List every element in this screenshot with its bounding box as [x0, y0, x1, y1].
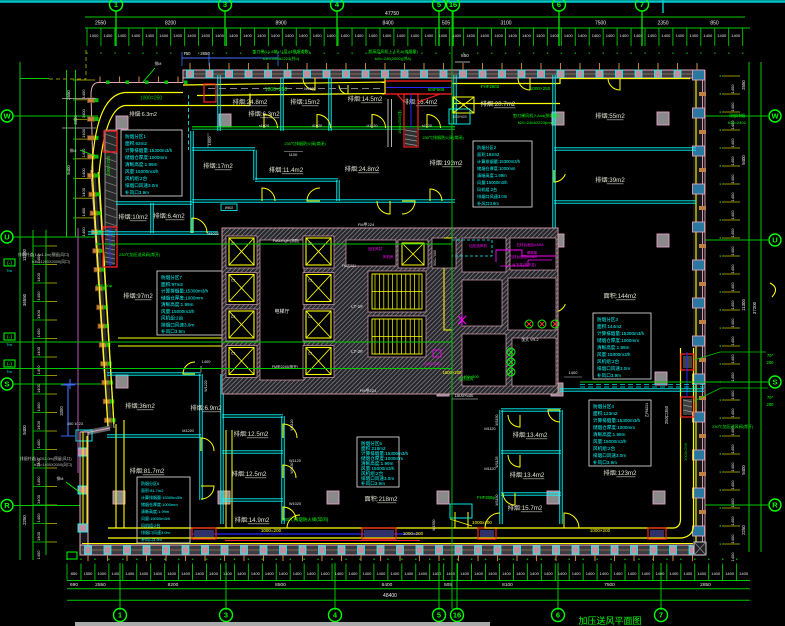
svg-text:1400: 1400	[731, 33, 741, 38]
svg-text:1400: 1400	[36, 494, 41, 504]
svg-text:1400: 1400	[396, 33, 406, 38]
svg-text:FM乙221: FM乙221	[342, 263, 356, 268]
svg-text:电梯厅: 电梯厅	[274, 308, 289, 315]
svg-text:1400: 1400	[209, 571, 219, 576]
svg-text:补风口3.9m: 补风口3.9m	[125, 189, 149, 196]
svg-text:1400: 1400	[730, 282, 735, 292]
svg-text:7500: 7500	[604, 582, 615, 588]
svg-text:排烟:12.5m2: 排烟:12.5m2	[234, 430, 269, 438]
svg-text:1400: 1400	[730, 372, 735, 382]
svg-text:1400: 1400	[36, 550, 41, 560]
svg-text:47750: 47750	[385, 11, 399, 17]
svg-text:1400: 1400	[223, 571, 233, 576]
svg-text:b3h=1400X2000(风口): b3h=1400X2000(风口)	[34, 463, 73, 467]
svg-text:6: 6	[556, 611, 560, 620]
svg-text:防烟分区4: 防烟分区4	[593, 403, 614, 410]
svg-text:FM甲224: FM甲224	[358, 222, 375, 227]
svg-text:补风口3.9m: 补风口3.9m	[161, 328, 185, 335]
svg-text:1550: 1550	[83, 571, 93, 576]
svg-text:排烟口风速3.0m: 排烟口风速3.0m	[477, 193, 508, 200]
svg-text:1400: 1400	[36, 439, 41, 449]
svg-text:1400: 1400	[586, 571, 596, 576]
svg-text:1400: 1400	[307, 571, 317, 576]
svg-text:1400: 1400	[739, 571, 749, 576]
svg-text:1400: 1400	[730, 498, 735, 508]
svg-text:1400: 1400	[730, 138, 735, 148]
svg-text:1400: 1400	[167, 571, 177, 576]
svg-text:1400: 1400	[285, 33, 295, 38]
svg-text:1400: 1400	[125, 571, 135, 576]
svg-text:S: S	[772, 378, 777, 387]
svg-text:1400: 1400	[675, 33, 685, 38]
svg-text:排烟:36m2: 排烟:36m2	[125, 402, 155, 410]
svg-text:排烟:12.5m2: 排烟:12.5m2	[232, 470, 267, 478]
svg-text:补风口3.9m: 补风口3.9m	[361, 480, 385, 487]
svg-text:面积:81.7m2: 面积:81.7m2	[141, 487, 164, 493]
svg-text:W1020: W1020	[289, 502, 301, 506]
svg-text:3: 3	[224, 611, 228, 620]
svg-text:9400: 9400	[741, 465, 746, 475]
svg-text:7m: 7m	[6, 369, 12, 374]
svg-text:博物架: 博物架	[527, 250, 538, 255]
svg-text:风量:15000m3/h: 风量:15000m3/h	[125, 168, 159, 175]
svg-text:b2h=2402: b2h=2402	[728, 120, 747, 125]
svg-text:排烟口风速3.0m: 排烟口风速3.0m	[125, 182, 158, 189]
svg-text:剪刀梯风机入And(排烟量): 剪刀梯风机入And(排烟量)	[513, 112, 559, 118]
svg-text:排烟:10m2: 排烟:10m2	[118, 213, 148, 221]
svg-text:风机组:2台: 风机组:2台	[597, 358, 620, 365]
svg-text:M1520: M1520	[304, 87, 316, 91]
svg-text:储烟仓厚度:1000mm: 储烟仓厚度:1000mm	[593, 424, 635, 431]
svg-text:1400: 1400	[36, 420, 41, 430]
svg-text:风量:15000m3/h: 风量:15000m3/h	[597, 351, 631, 358]
svg-text:排烟:14.5m2: 排烟:14.5m2	[348, 95, 383, 103]
svg-text:1400: 1400	[683, 571, 693, 576]
svg-text:面积:144m2: 面积:144m2	[603, 292, 637, 300]
svg-text:1000x2500(排): 1000x2500(排)	[397, 110, 402, 134]
svg-text:面积:192m2: 面积:192m2	[477, 151, 500, 158]
svg-text:补风口3.9m: 补风口3.9m	[593, 459, 617, 466]
svg-text:排烟:24.8m2: 排烟:24.8m2	[345, 165, 380, 173]
svg-text:1400: 1400	[466, 33, 476, 38]
svg-text:1400: 1400	[558, 571, 568, 576]
svg-text:W: W	[771, 112, 779, 121]
svg-text:1400: 1400	[730, 192, 735, 202]
svg-text:加压送风: 加压送风	[458, 376, 473, 381]
svg-text:W1125: W1125	[495, 456, 499, 467]
svg-text:W1150: W1150	[495, 414, 499, 425]
svg-text:排烟:24.8m2: 排烟:24.8m2	[233, 98, 268, 106]
svg-text:1400: 1400	[321, 571, 331, 576]
svg-text:清晰高度:1.99m: 清晰高度:1.99m	[597, 344, 630, 351]
svg-text:7500: 7500	[595, 21, 606, 27]
svg-text:850: 850	[710, 21, 719, 27]
svg-text:1400: 1400	[36, 402, 41, 412]
svg-text:50017000: 50017000	[433, 250, 437, 266]
svg-text:面积:218m2: 面积:218m2	[364, 495, 398, 503]
svg-text:1400: 1400	[251, 571, 261, 576]
svg-text:2650: 2650	[200, 51, 210, 56]
svg-text:1400: 1400	[81, 128, 86, 138]
svg-text:11300: 11300	[741, 299, 746, 311]
svg-text:1400: 1400	[145, 33, 155, 38]
svg-text:850 1023: 850 1023	[67, 422, 83, 426]
svg-text:R: R	[772, 501, 778, 510]
svg-text:1400: 1400	[460, 571, 470, 576]
svg-text:M1120: M1120	[484, 427, 495, 431]
svg-text:1400: 1400	[81, 89, 86, 99]
svg-text:3: 3	[223, 0, 227, 9]
svg-text:1400: 1400	[139, 571, 149, 576]
svg-text:1400: 1400	[730, 156, 735, 166]
svg-text:W1150: W1150	[495, 494, 499, 505]
svg-text:面积:63m2: 面积:63m2	[125, 140, 147, 147]
svg-text:1400: 1400	[730, 354, 735, 364]
svg-text:清晰高度:1.99m: 清晰高度:1.99m	[125, 161, 158, 168]
svg-text:1400: 1400	[578, 33, 588, 38]
svg-text:1400: 1400	[201, 33, 211, 38]
svg-text:8200: 8200	[165, 21, 176, 27]
svg-text:加压风井: 加压风井	[368, 246, 383, 251]
svg-text:230℃加压送风阀(常开): 230℃加压送风阀(常开)	[119, 251, 161, 257]
svg-text:(-): (-)	[7, 362, 12, 368]
svg-text:U: U	[772, 236, 777, 245]
svg-text:排烟:17m2: 排烟:17m2	[203, 162, 233, 170]
svg-text:面积:123m2: 面积:123m2	[593, 410, 618, 417]
svg-text:排烟:97m2: 排烟:97m2	[123, 292, 153, 300]
svg-text:W1150: W1150	[290, 462, 294, 473]
svg-text:1400: 1400	[81, 187, 86, 197]
svg-text:1400: 1400	[592, 33, 602, 38]
svg-text:16: 16	[449, 0, 457, 9]
svg-text:2250: 2250	[22, 515, 27, 525]
svg-text:1400: 1400	[36, 346, 41, 356]
svg-text:1400: 1400	[730, 228, 735, 238]
svg-text:1400: 1400	[634, 33, 644, 38]
svg-text:防烟分区3: 防烟分区3	[597, 316, 618, 323]
svg-text:1400: 1400	[195, 571, 205, 576]
svg-text:1400: 1400	[730, 84, 735, 94]
svg-text:1400: 1400	[438, 33, 448, 38]
svg-text:W602: W602	[225, 206, 234, 210]
svg-text:1400: 1400	[341, 33, 351, 38]
svg-text:1400: 1400	[173, 33, 183, 38]
svg-text:2250: 2250	[741, 525, 746, 535]
svg-text:1400: 1400	[600, 571, 610, 576]
svg-text:1400: 1400	[36, 309, 41, 319]
svg-text:1400: 1400	[117, 33, 127, 38]
svg-text:M1550: M1550	[432, 520, 436, 531]
svg-text:9400: 9400	[22, 425, 27, 435]
svg-text:1400: 1400	[669, 571, 679, 576]
svg-text:2550: 2550	[95, 582, 106, 588]
svg-text:1400: 1400	[536, 33, 546, 38]
svg-text:1400: 1400	[355, 33, 365, 38]
svg-text:8500: 8500	[275, 582, 286, 588]
svg-text:1400: 1400	[418, 571, 428, 576]
svg-text:1400: 1400	[550, 33, 560, 38]
svg-text:1400: 1400	[648, 33, 658, 38]
svg-text:1000×200: 1000×200	[590, 528, 611, 533]
svg-text:1400: 1400	[488, 571, 498, 576]
svg-text:2550: 2550	[95, 21, 106, 27]
svg-text:1400: 1400	[502, 571, 512, 576]
svg-text:1400: 1400	[446, 571, 456, 576]
svg-text:1400: 1400	[655, 571, 665, 576]
svg-text:1400: 1400	[424, 33, 434, 38]
svg-text:1400: 1400	[293, 571, 303, 576]
svg-text:1400: 1400	[641, 571, 651, 576]
svg-text:计算排烟量:15300m3/h: 计算排烟量:15300m3/h	[477, 158, 521, 165]
svg-text:(-): (-)	[7, 261, 12, 267]
svg-text:防烟分区7: 防烟分区7	[161, 274, 182, 281]
svg-text:1400: 1400	[530, 571, 540, 576]
svg-text:7: 7	[640, 0, 644, 9]
svg-text:1400: 1400	[36, 513, 41, 523]
svg-text:1400: 1400	[730, 516, 735, 526]
svg-text:1400: 1400	[349, 571, 359, 576]
svg-text:补风口3.9m: 补风口3.9m	[597, 372, 621, 379]
svg-text:M1220: M1220	[182, 429, 194, 433]
svg-text:1000: 1000	[97, 571, 107, 576]
svg-text:250口350: 250口350	[664, 405, 669, 424]
svg-text:U: U	[4, 233, 9, 242]
svg-text:Passenger(消防): Passenger(消防)	[273, 238, 300, 243]
svg-text:280: 280	[767, 360, 775, 365]
svg-text:1400: 1400	[480, 33, 490, 38]
svg-text:风机组:2台: 风机组:2台	[593, 445, 616, 452]
svg-text:C3: C3	[308, 315, 312, 319]
svg-text:1400: 1400	[730, 480, 735, 490]
svg-text:1400: 1400	[452, 33, 462, 38]
svg-text:5: 5	[437, 611, 441, 620]
svg-text:排烟口风速3.0m: 排烟口风速3.0m	[593, 452, 626, 459]
svg-text:1400: 1400	[730, 462, 735, 472]
svg-text:1400: 1400	[215, 33, 225, 38]
svg-text:排烟:20.7m2: 排烟:20.7m2	[481, 100, 516, 108]
svg-text:C3: C3	[231, 279, 235, 283]
svg-text:储烟仓厚度:1000mm: 储烟仓厚度:1000mm	[597, 337, 639, 344]
svg-text:计算排烟量:15300m3/h: 计算排烟量:15300m3/h	[161, 288, 209, 295]
svg-text:1400: 1400	[103, 33, 113, 38]
svg-text:1400: 1400	[390, 571, 400, 576]
svg-text:剪刀梯(L1.8坡x八层)(4根烟道数): 剪刀梯(L1.8坡x八层)(4根烟道数)	[252, 48, 310, 54]
svg-text:1400: 1400	[703, 33, 713, 38]
svg-text:1400: 1400	[181, 571, 191, 576]
svg-text:1400: 1400	[522, 33, 532, 38]
svg-text:LT-2#: LT-2#	[351, 349, 363, 354]
svg-text:排烟:16.4m2: 排烟:16.4m2	[403, 98, 438, 106]
svg-text:排烟:15m2: 排烟:15m2	[290, 98, 320, 106]
svg-text:排烟:192m2: 排烟:192m2	[429, 159, 463, 167]
svg-text:1400: 1400	[569, 370, 579, 375]
svg-text:1400: 1400	[81, 108, 86, 118]
svg-text:9400: 9400	[741, 155, 746, 165]
svg-text:风机组:2台: 风机组:2台	[125, 175, 148, 182]
svg-text:36550: 36550	[22, 293, 27, 306]
svg-text:排烟:6.3m2: 排烟:6.3m2	[129, 110, 157, 118]
svg-text:230℃排烟防火阀(常闭): 230℃排烟防火阀(常闭)	[422, 134, 464, 140]
svg-text:W1220: W1220	[204, 380, 208, 391]
svg-text:坐式 VR-2: 坐式 VR-2	[521, 337, 538, 342]
svg-text:1400: 1400	[159, 33, 169, 38]
svg-text:FHF280φ: FHF280φ	[96, 284, 113, 288]
svg-text:1000=250: 1000=250	[265, 87, 288, 93]
svg-text:1000: 1000	[90, 33, 100, 38]
svg-text:280: 280	[767, 402, 775, 407]
svg-text:乙FM224: 乙FM224	[644, 403, 649, 418]
svg-text:1400: 1400	[81, 168, 86, 178]
svg-text:s1020: s1020	[259, 124, 269, 128]
svg-text:1400: 1400	[81, 148, 86, 158]
svg-text:储烟仓厚度:1000mm: 储烟仓厚度:1000mm	[161, 294, 203, 301]
svg-text:排烟口风速3.0m: 排烟口风速3.0m	[141, 529, 171, 535]
svg-text:1400: 1400	[508, 33, 518, 38]
svg-text:1400: 1400	[730, 264, 735, 274]
svg-text:S: S	[4, 380, 9, 389]
svg-text:70*: 70*	[767, 395, 774, 400]
svg-text:C3: C3	[308, 279, 312, 283]
svg-text:C3: C3	[231, 352, 235, 356]
svg-text:2850: 2850	[700, 582, 711, 588]
svg-text:2300: 2300	[73, 115, 78, 125]
svg-text:排烟:123m2: 排烟:123m2	[603, 469, 637, 477]
svg-text:37200: 37200	[752, 301, 757, 314]
svg-text:LT-1#: LT-1#	[351, 304, 363, 309]
svg-text:储烟仓厚度:1000mm: 储烟仓厚度:1000mm	[477, 165, 516, 172]
svg-text:6400: 6400	[382, 582, 393, 588]
svg-text:1400: 1400	[382, 33, 392, 38]
svg-text:1400: 1400	[730, 408, 735, 418]
svg-text:8900: 8900	[275, 21, 286, 27]
svg-text:9400: 9400	[66, 165, 71, 175]
svg-text:1400: 1400	[36, 365, 41, 375]
svg-text:1400: 1400	[730, 534, 735, 544]
svg-text:排烟井道(1.6x1.2m)预留(风口): 排烟井道(1.6x1.2m)预留(风口)	[18, 252, 70, 257]
svg-text:1400: 1400	[661, 33, 671, 38]
svg-text:1400: 1400	[725, 571, 735, 576]
svg-text:1400: 1400	[243, 33, 253, 38]
svg-text:风机组:2台: 风机组:2台	[161, 315, 184, 322]
svg-text:b2h=240(2000)(供A): b2h=240(2000)(供A)	[375, 55, 412, 61]
svg-text:排M: 排M	[155, 61, 162, 66]
svg-text:加压送风机: 加压送风机	[469, 243, 487, 248]
svg-text:W1120: W1120	[289, 459, 301, 463]
svg-text:7: 7	[659, 611, 663, 620]
svg-text:1400: 1400	[544, 571, 554, 576]
svg-text:7m: 7m	[6, 342, 12, 347]
svg-text:1400: 1400	[432, 571, 442, 576]
svg-text:1000x400: 1000x400	[472, 520, 492, 525]
svg-text:2350: 2350	[657, 21, 668, 27]
svg-text:面积:144m2: 面积:144m2	[597, 323, 622, 330]
svg-text:顶部排烟: 顶部排烟	[729, 112, 745, 118]
svg-text:7m: 7m	[6, 268, 12, 273]
svg-text:1400: 1400	[628, 571, 638, 576]
svg-text:1400: 1400	[81, 207, 86, 217]
svg-text:防烟分区2: 防烟分区2	[477, 144, 497, 151]
svg-text:石材台面及nANA: 石材台面及nANA	[516, 242, 544, 247]
svg-text:U1120: U1120	[367, 124, 378, 128]
svg-text:面积:97m2: 面积:97m2	[161, 281, 183, 288]
svg-text:FHF2802: FHF2802	[481, 84, 500, 89]
svg-text:850: 850	[71, 571, 78, 576]
svg-text:1400: 1400	[36, 328, 41, 338]
svg-text:1400: 1400	[474, 571, 484, 576]
svg-text:1000×250: 1000×250	[424, 362, 441, 366]
svg-text:排烟:6.4m2: 排烟:6.4m2	[153, 212, 185, 220]
svg-text:1000=200: 1000=200	[403, 531, 424, 536]
svg-text:1400: 1400	[730, 318, 735, 328]
svg-text:1400: 1400	[730, 444, 735, 454]
svg-text:计算排烟量:15300m3/h: 计算排烟量:15300m3/h	[125, 147, 173, 154]
svg-text:W: W	[3, 112, 11, 121]
svg-text:W1120: W1120	[290, 419, 294, 430]
svg-text:1400: 1400	[279, 571, 289, 576]
svg-text:1400: 1400	[494, 33, 504, 38]
svg-text:排烟:13.4m2: 排烟:13.4m2	[513, 431, 548, 439]
svg-text:48400: 48400	[383, 593, 397, 599]
svg-text:FM甲224: FM甲224	[360, 388, 377, 393]
svg-text:C3: C3	[308, 352, 312, 356]
svg-text:M1023: M1023	[207, 232, 219, 236]
svg-text:s1120: s1120	[422, 124, 432, 128]
svg-text:1400: 1400	[697, 571, 707, 576]
svg-text:230℃排烟防火阀(常闭): 230℃排烟防火阀(常闭)	[284, 140, 326, 146]
svg-text:清晰高度:1.99m: 清晰高度:1.99m	[161, 301, 194, 308]
svg-text:排烟:11.4m2: 排烟:11.4m2	[269, 166, 304, 174]
svg-text:1100: 1100	[289, 152, 298, 157]
svg-text:排烟口风速3.0m: 排烟口风速3.0m	[597, 365, 630, 372]
svg-text:排烟:81.7m2: 排烟:81.7m2	[130, 467, 165, 475]
svg-text:风机组:2台: 风机组:2台	[141, 522, 160, 528]
svg-text:清晰高度:1.99m: 清晰高度:1.99m	[141, 508, 170, 514]
svg-text:1000=250: 1000=250	[140, 96, 163, 102]
svg-text:8400: 8400	[382, 21, 393, 27]
svg-text:505: 505	[444, 582, 452, 588]
svg-text:750: 750	[184, 51, 192, 56]
svg-text:排烟:55m2: 排烟:55m2	[595, 112, 625, 120]
svg-text:1400: 1400	[36, 383, 41, 393]
svg-text:排烟:6.9m2: 排烟:6.9m2	[190, 404, 222, 412]
svg-text:1400: 1400	[313, 33, 323, 38]
svg-text:1400: 1400	[362, 571, 372, 576]
svg-text:防烟分区6: 防烟分区6	[141, 480, 160, 486]
svg-text:计算排烟量:15300m3/h: 计算排烟量:15300m3/h	[593, 417, 641, 424]
svg-text:850: 850	[461, 53, 469, 58]
svg-text:16: 16	[453, 611, 461, 620]
svg-text:超高层风机上人孔A(排烟量): 超高层风机上人孔A(排烟量)	[368, 48, 418, 54]
svg-text:1000×250: 1000×250	[106, 155, 111, 176]
svg-text:排烟:6.3m2: 排烟:6.3m2	[248, 110, 280, 118]
svg-text:8200: 8200	[168, 582, 179, 588]
svg-text:1400: 1400	[187, 33, 197, 38]
svg-text:505: 505	[442, 21, 451, 27]
svg-text:排烟:14.9m2: 排烟:14.9m2	[235, 516, 270, 524]
svg-text:R: R	[4, 501, 10, 510]
svg-text:1400: 1400	[229, 33, 239, 38]
svg-text:储烟仓厚度:1000mm: 储烟仓厚度:1000mm	[141, 501, 178, 507]
svg-text:1400: 1400	[369, 33, 379, 38]
svg-text:M1120: M1120	[484, 467, 495, 471]
svg-text:1400: 1400	[730, 174, 735, 184]
svg-text:(-): (-)	[7, 335, 12, 341]
svg-text:1400: 1400	[730, 390, 735, 400]
svg-text:风机房: 风机房	[383, 254, 394, 259]
svg-text:2550: 2550	[741, 80, 746, 90]
svg-text:8100: 8100	[502, 582, 513, 588]
svg-text:b3h=240A2223(共d): b3h=240A2223(共d)	[263, 55, 300, 61]
